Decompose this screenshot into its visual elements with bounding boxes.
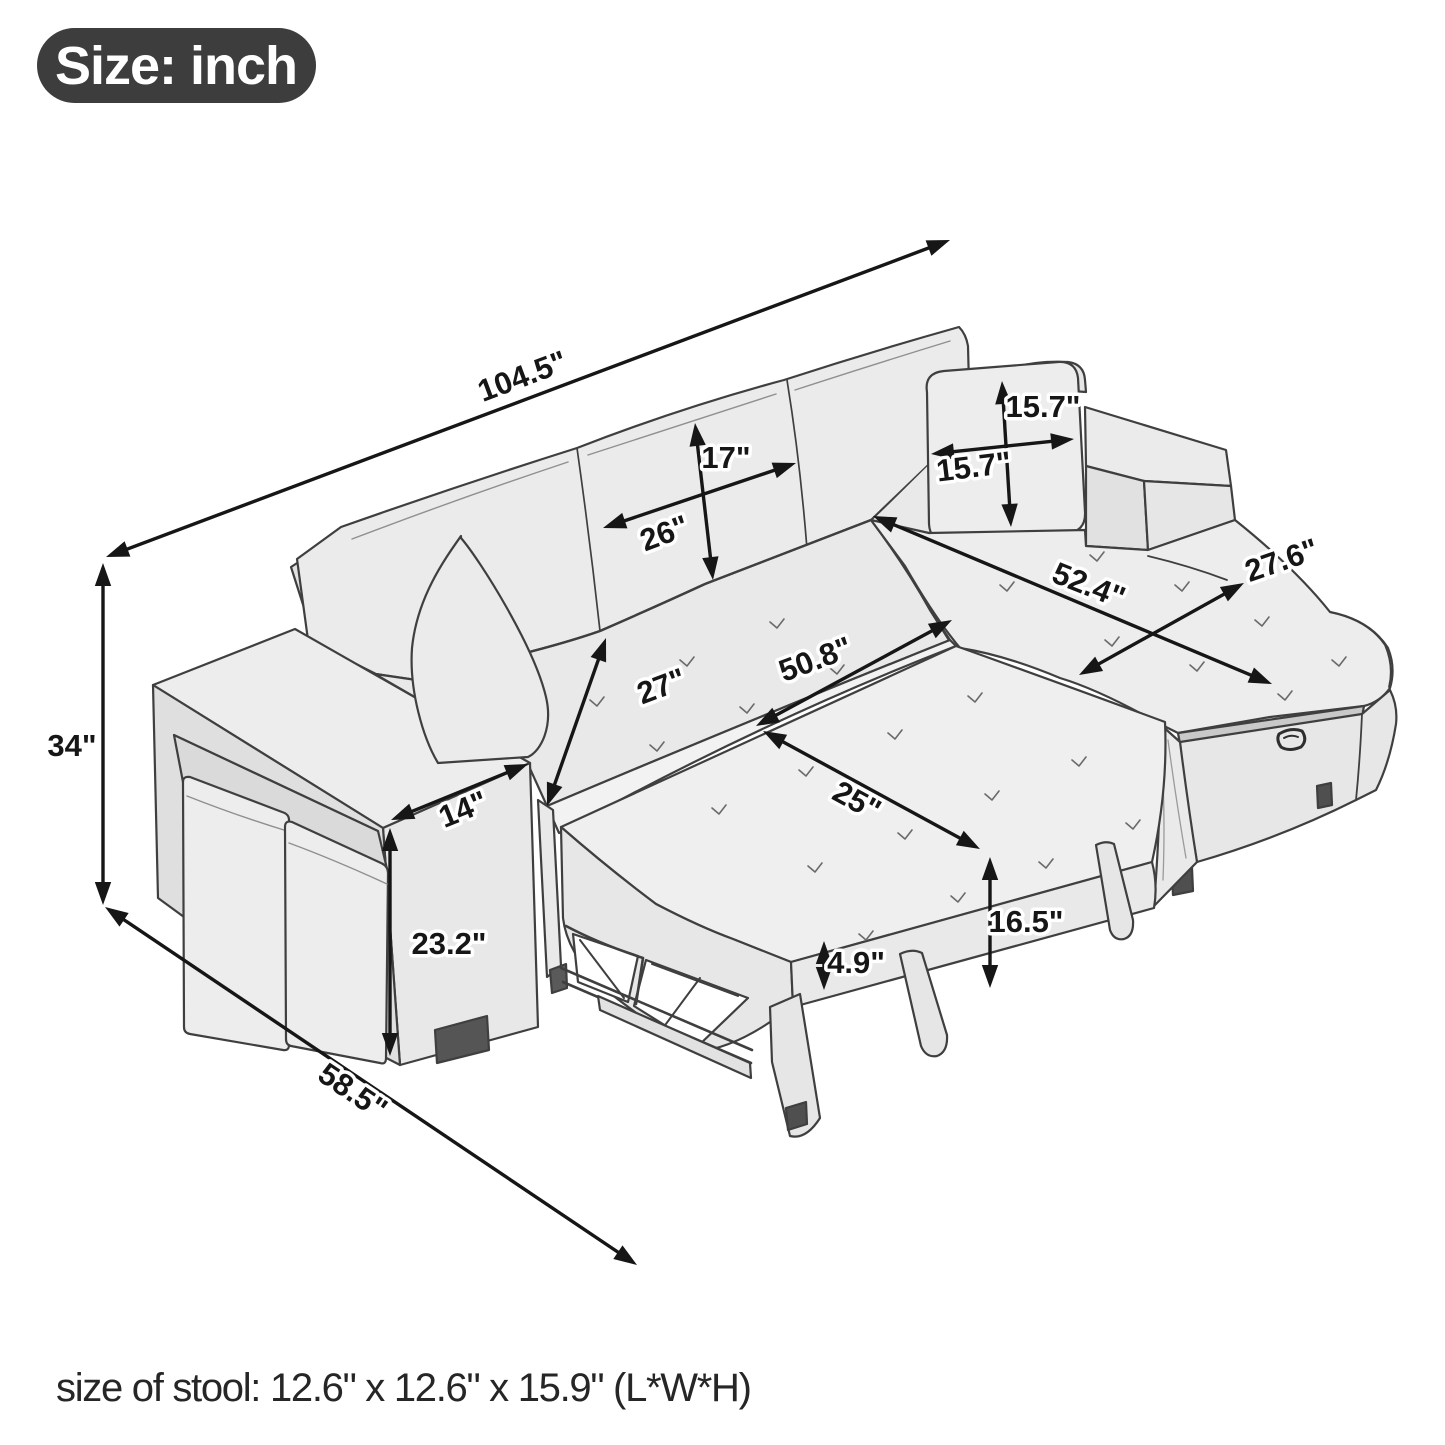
svg-text:size of stool: 12.6" x 12.6" x: size of stool: 12.6" x 12.6" x 15.9" (L*… [56, 1366, 751, 1410]
svg-text:16.5": 16.5" [988, 904, 1063, 939]
svg-text:Size: inch: Size: inch [55, 36, 297, 96]
svg-text:58.5": 58.5" [312, 1056, 394, 1127]
svg-text:34": 34" [47, 728, 96, 763]
svg-text:17": 17" [701, 440, 750, 475]
svg-text:4.9": 4.9" [827, 945, 885, 980]
svg-text:15.7": 15.7" [1005, 389, 1080, 424]
svg-text:23.2": 23.2" [411, 926, 486, 961]
